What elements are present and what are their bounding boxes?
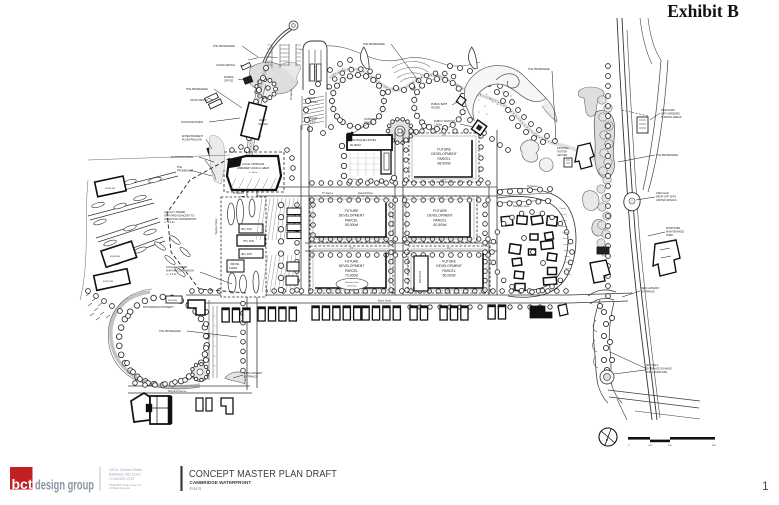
- svg-text:10,000sf: 10,000sf: [258, 123, 268, 126]
- svg-text:240': 240': [442, 180, 447, 182]
- svg-text:48 Spaces: 48 Spaces: [233, 193, 245, 195]
- svg-text:THE PROMENADE: THE PROMENADE: [186, 88, 208, 91]
- svg-text:THE PROMENADE: THE PROMENADE: [528, 68, 550, 71]
- svg-text:240': 240': [668, 445, 673, 447]
- svg-text:56,000sf: 56,000sf: [442, 273, 455, 277]
- svg-text:CAMBRIDGE WATERFRONT: CAMBRIDGE WATERFRONT: [190, 480, 252, 485]
- svg-text:design group: design group: [35, 477, 94, 492]
- svg-text:240': 240': [447, 291, 452, 293]
- svg-text:EXISTING: EXISTING: [110, 256, 121, 258]
- svg-text:PARCEL: PARCEL: [442, 269, 455, 273]
- svg-text:FUTURE: FUTURE: [437, 148, 451, 152]
- svg-text:Rosehill Place: Rosehill Place: [358, 192, 374, 195]
- svg-text:FUTURE: FUTURE: [345, 260, 359, 264]
- svg-text:FUTURE: FUTURE: [442, 260, 456, 264]
- svg-text:ENTRANCE: ENTRANCE: [641, 290, 655, 293]
- svg-text:BOUTIQUE HOTEL: BOUTIQUE HOTEL: [350, 138, 377, 142]
- svg-text:All Rights Reserved: All Rights Reserved: [109, 487, 131, 490]
- svg-text:Hayward Street: Hayward Street: [215, 218, 218, 235]
- svg-text:Radspace Drive: Radspace Drive: [513, 205, 530, 208]
- svg-text:100 N. Charles Street,: 100 N. Charles Street,: [109, 468, 143, 472]
- svg-text:PARCEL: PARCEL: [437, 157, 450, 161]
- svg-text:240': 240': [349, 240, 354, 242]
- svg-text:DEVELOPMENT: DEVELOPMENT: [436, 264, 462, 268]
- svg-text:+/- 2.6 ac: +/- 2.6 ac: [164, 221, 175, 224]
- svg-text:EXISTING: EXISTING: [103, 281, 114, 283]
- svg-text:THE PROMENADE: THE PROMENADE: [213, 45, 235, 48]
- svg-text:N: N: [606, 438, 608, 442]
- svg-text:120': 120': [648, 445, 653, 447]
- svg-text:DEVELOPMENT: DEVELOPMENT: [339, 214, 365, 218]
- svg-text:57 Spaces: 57 Spaces: [322, 193, 334, 195]
- svg-text:70,000sf: 70,000sf: [345, 273, 358, 277]
- svg-text:SHED: SHED: [666, 234, 673, 237]
- svg-text:Exhibit B: Exhibit B: [667, 1, 739, 21]
- svg-text:EXISTING: EXISTING: [418, 271, 422, 283]
- svg-text:DEVELOPMENT: DEVELOPMENT: [339, 264, 365, 268]
- svg-text:REST.: REST.: [259, 118, 267, 122]
- svg-text:KAYAK RENTAL: KAYAK RENTAL: [190, 99, 209, 102]
- svg-text:PARCEL: PARCEL: [345, 218, 358, 222]
- svg-text:RICHARDSON PROPERTY: RICHARDSON PROPERTY: [143, 306, 175, 309]
- svg-text:Existing Trees: Existing Trees: [345, 281, 360, 284]
- svg-text:ENTRANCE: ENTRANCE: [244, 375, 258, 378]
- svg-text:CONCEPT MASTER PLAN DRAFT: CONCEPT MASTER PLAN DRAFT: [189, 469, 337, 480]
- svg-text:CANOE RENTAL: CANOE RENTAL: [216, 64, 236, 67]
- svg-text:5,000sf: 5,000sf: [229, 267, 238, 270]
- svg-text:LOCAL TAPROOM: LOCAL TAPROOM: [242, 162, 264, 166]
- svg-text:240': 240': [447, 248, 452, 250]
- svg-text:240': 240': [349, 248, 354, 250]
- svg-text:OUTDOOR DINING: OUTDOOR DINING: [171, 156, 193, 159]
- svg-text:480': 480': [712, 445, 717, 447]
- svg-text:75'x 150': 75'x 150': [243, 239, 254, 243]
- svg-text:48 Spaces: 48 Spaces: [527, 186, 539, 188]
- svg-text:1: 1: [762, 479, 769, 493]
- svg-text:FUTURE: FUTURE: [433, 209, 447, 213]
- svg-text:DEVELOPMENT: DEVELOPMENT: [427, 214, 453, 218]
- svg-text:+/- 1.5 ac: +/- 1.5 ac: [166, 273, 177, 276]
- svg-text:70 Spaces: 70 Spaces: [352, 179, 363, 181]
- svg-text:1,000sf: 1,000sf: [434, 123, 443, 126]
- svg-text:THE PROMENADE: THE PROMENADE: [159, 330, 181, 333]
- svg-text:LIMITED SPACES: LIMITED SPACES: [656, 199, 677, 202]
- svg-text:PARCEL: PARCEL: [345, 269, 358, 273]
- svg-text:PARCEL: PARCEL: [433, 218, 446, 222]
- svg-text:240': 240': [438, 198, 443, 200]
- svg-text:40'x 100': 40'x 100': [241, 227, 252, 231]
- svg-text:TURNING AREAS: TURNING AREAS: [661, 116, 682, 119]
- svg-text:PROMENADE: PROMENADE: [177, 169, 193, 172]
- svg-text:240': 240': [438, 240, 443, 242]
- svg-text:DINING: DINING: [364, 121, 373, 124]
- svg-text:240': 240': [349, 291, 354, 293]
- svg-text:+/- .80 ac: +/- .80 ac: [248, 172, 258, 174]
- svg-text:CENTER: CENTER: [557, 154, 567, 157]
- svg-text:+1 410.837.2727: +1 410.837.2727: [109, 477, 135, 481]
- svg-text:AND LANDSCAPE: AND LANDSCAPE: [646, 371, 667, 374]
- svg-text:EXISTING: EXISTING: [168, 300, 178, 302]
- svg-text:PLAZA PAVILION: PLAZA PAVILION: [182, 138, 202, 141]
- svg-text:THE PROMENADE: THE PROMENADE: [363, 43, 385, 46]
- svg-text:240': 240': [442, 135, 447, 137]
- svg-text:Byrne Street: Byrne Street: [378, 300, 392, 303]
- svg-text:68,000sf: 68,000sf: [437, 161, 450, 165]
- svg-text:DEVELOPMENT: DEVELOPMENT: [431, 152, 457, 156]
- svg-text:OFFICE: OFFICE: [224, 79, 233, 82]
- svg-text:Baltimore, MD 21201: Baltimore, MD 21201: [109, 473, 141, 477]
- svg-text:bct: bct: [12, 476, 33, 492]
- svg-text:EXISTING: EXISTING: [105, 188, 116, 190]
- svg-text:60,000sf: 60,000sf: [345, 223, 358, 227]
- svg-text:FUTURE: FUTURE: [345, 209, 359, 213]
- svg-text:62,500sf: 62,500sf: [433, 223, 446, 227]
- svg-text:THE PROMENADE: THE PROMENADE: [656, 154, 678, 157]
- svg-text:36 Spaces: 36 Spaces: [290, 88, 293, 100]
- svg-text:HOUSE: HOUSE: [431, 106, 440, 109]
- svg-text:Maryland Avenue: Maryland Avenue: [168, 390, 187, 393]
- svg-text:240': 240': [349, 198, 354, 200]
- svg-text:20,000sf: 20,000sf: [350, 143, 361, 147]
- svg-text:& BREWERY 20,000 sf +MEZZ: & BREWERY 20,000 sf +MEZZ: [237, 168, 270, 170]
- svg-text:OUTDOOR DINING: OUTDOOR DINING: [181, 121, 203, 124]
- svg-text:03.20.21: 03.20.21: [190, 487, 202, 491]
- svg-text:40'x 100': 40'x 100': [241, 252, 252, 256]
- svg-text:OFFICE: OFFICE: [230, 263, 239, 266]
- svg-text:to Remain: to Remain: [347, 285, 358, 288]
